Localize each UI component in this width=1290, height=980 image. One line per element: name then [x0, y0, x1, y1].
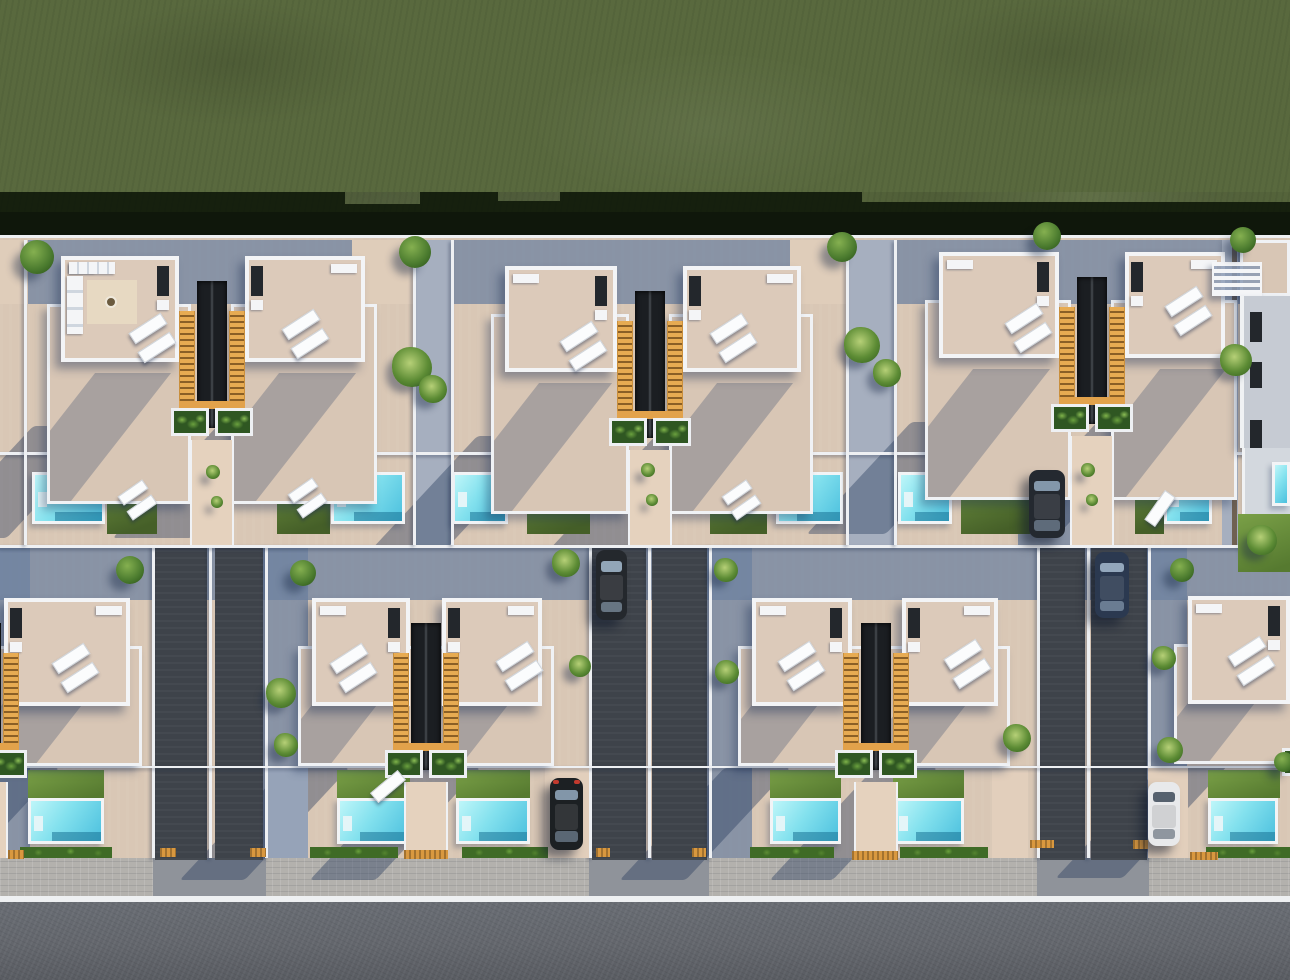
lawn: [1208, 770, 1280, 798]
pool-step-notch: [462, 816, 471, 831]
stair-flight: [617, 321, 633, 413]
roof-kitchen-slats: [69, 262, 115, 274]
pergola-slats: [1212, 262, 1262, 296]
roof-skylight: [1131, 262, 1143, 292]
roof-unit-box: [388, 642, 400, 652]
tree: [1230, 227, 1256, 253]
corner-building-facade: [1240, 296, 1290, 448]
pool-step: [479, 832, 527, 841]
pool-step-notch: [458, 492, 467, 507]
grass-notch: [345, 192, 420, 204]
pool-step-notch: [1214, 816, 1223, 831]
boundary-wall: [413, 240, 416, 545]
driveway-wall: [209, 545, 212, 858]
roof-unit-box: [10, 642, 22, 652]
car-windshield: [1153, 792, 1175, 802]
hedge: [1206, 847, 1290, 858]
roof-skylight: [1037, 262, 1049, 292]
car-rear-glass: [1034, 520, 1059, 530]
pool-step: [360, 832, 407, 841]
tactile-pad: [160, 848, 176, 857]
palm-tree: [211, 496, 223, 508]
entry-walkway: [404, 782, 448, 858]
planter-box: [215, 408, 253, 436]
facade-window: [1250, 362, 1262, 388]
driveway-wall: [709, 545, 712, 858]
terrace-shadow: [47, 373, 171, 504]
roof-skylight: [157, 266, 169, 296]
lawn: [28, 770, 104, 798]
grass-field: [0, 0, 1290, 212]
pool-step: [793, 832, 839, 841]
driveway: [215, 545, 263, 860]
roof-unit-box: [830, 642, 842, 652]
stair-flight: [393, 653, 409, 745]
car-windshield: [601, 561, 623, 572]
planter-box: [879, 750, 917, 778]
planter-box: [609, 418, 647, 446]
tactile-pad: [692, 848, 706, 857]
car-roof: [1152, 805, 1175, 828]
entry-walkway: [190, 440, 234, 545]
palm-tree: [844, 327, 880, 363]
palm-tree: [266, 678, 296, 708]
planter-box: [0, 750, 27, 778]
roof-table: [105, 296, 117, 308]
roof-unit-box: [908, 642, 920, 652]
planter-box: [1051, 404, 1089, 432]
palm-tree: [1086, 494, 1098, 506]
roof-edge-box: [96, 606, 122, 615]
parked-car: [1029, 470, 1065, 538]
tree: [116, 556, 144, 584]
palm-tree: [206, 465, 220, 479]
palm-tree: [569, 655, 591, 677]
facade-window: [1250, 420, 1262, 448]
stair-flight: [3, 653, 19, 745]
tactile-pad: [596, 848, 610, 857]
planter-box: [385, 750, 423, 778]
hedge: [310, 847, 398, 858]
pool-step-notch: [34, 816, 43, 831]
driveway: [652, 545, 707, 860]
driveway-wall: [648, 545, 651, 858]
roof-edge-box: [320, 606, 346, 615]
facade-window: [1250, 312, 1262, 342]
corner-pool: [1272, 462, 1290, 506]
car-windshield: [1100, 563, 1124, 573]
roof-skylight: [908, 608, 920, 638]
parking-spot: [992, 770, 1028, 858]
car-rear-glass: [1153, 829, 1175, 839]
planter-box: [171, 408, 209, 436]
palm-tree: [419, 375, 447, 403]
tree: [1170, 558, 1194, 582]
entry-walkway: [1070, 436, 1114, 545]
tactile-pad: [1133, 840, 1148, 849]
parked-car: [1148, 782, 1180, 846]
roof-unit-box: [1131, 296, 1143, 306]
terrace-shadow: [231, 373, 356, 504]
stair-flight: [667, 321, 683, 413]
roof-unit-box: [1037, 296, 1049, 306]
roof-edge-box: [508, 606, 534, 615]
swimming-pool: [456, 798, 530, 844]
palm-tree: [715, 660, 739, 684]
stair-flight: [843, 653, 859, 745]
driveway: [1040, 545, 1085, 860]
stair-flight: [1109, 307, 1125, 399]
planter-box: [653, 418, 691, 446]
car-roof: [1100, 576, 1124, 600]
pool-step: [354, 512, 402, 521]
driveway-wall: [1087, 545, 1090, 858]
tree: [1274, 752, 1290, 772]
tactile-pad: [404, 850, 448, 859]
pool-step: [915, 512, 949, 521]
driveway: [155, 545, 207, 860]
palm-tree: [1081, 463, 1095, 477]
boundary-wall: [846, 240, 849, 545]
roof-skylight: [448, 608, 460, 638]
pool-step-notch: [899, 816, 908, 831]
palm-tree: [1220, 344, 1252, 376]
car-rear-glass: [1100, 601, 1124, 611]
roof-skylight: [595, 276, 607, 306]
palm-tree: [1152, 646, 1176, 670]
stair-flight: [443, 653, 459, 745]
parked-car: [1095, 552, 1129, 618]
boundary-wall: [0, 766, 1290, 768]
driveway-wall: [1037, 545, 1040, 858]
car-rear-glass: [601, 602, 623, 613]
stair-flight: [893, 653, 909, 745]
hedge: [750, 847, 834, 858]
roof-edge-box: [1196, 604, 1222, 613]
pool-step: [55, 512, 102, 521]
terrace-shadow: [1111, 369, 1226, 500]
planter-box: [835, 750, 873, 778]
pool-step-notch: [343, 816, 352, 831]
tree: [1033, 222, 1061, 250]
tree: [20, 240, 54, 274]
roof-unit-box: [157, 300, 169, 310]
grass-notch: [862, 192, 1290, 202]
swimming-pool: [28, 798, 104, 844]
villa-upper-roof: [902, 598, 998, 706]
car-roof: [555, 804, 579, 830]
roof-edge-box: [964, 606, 990, 615]
tactile-pad: [852, 851, 898, 860]
roof-unit-box: [689, 310, 701, 320]
villa-upper-roof: [939, 252, 1059, 358]
parking-spot: [268, 768, 308, 858]
roof-edge-box: [947, 260, 973, 269]
hedge: [462, 847, 548, 858]
stair-flight: [179, 311, 195, 403]
planter-box: [429, 750, 467, 778]
boundary-wall: [894, 240, 897, 545]
pool-step: [916, 832, 962, 841]
palm-tree: [1003, 724, 1031, 752]
roof-kitchen-counter: [67, 276, 83, 334]
roof-skylight: [1268, 606, 1280, 636]
grass-notch: [498, 192, 560, 201]
hedge: [900, 847, 988, 858]
villa-upper-roof: [505, 266, 617, 372]
street-asphalt: [0, 902, 1290, 980]
car-tail-light: [553, 780, 559, 784]
palm-tree: [274, 733, 298, 757]
pool-step-notch: [904, 492, 913, 507]
car-tail-light: [574, 780, 580, 784]
swimming-pool: [1208, 798, 1278, 844]
boundary-wall: [0, 545, 1290, 548]
roof-unit-box: [595, 310, 607, 320]
lawn: [456, 770, 530, 798]
boundary-wall: [24, 240, 27, 545]
entry-walkway: [854, 782, 898, 858]
pool-step: [1230, 832, 1275, 841]
tree: [827, 232, 857, 262]
palm-tree: [646, 494, 658, 506]
palm-tree: [1247, 525, 1277, 555]
roof-unit-box: [1268, 640, 1280, 650]
car-windshield: [555, 790, 578, 801]
tree: [399, 236, 431, 268]
parked-car: [596, 550, 627, 620]
car-roof: [600, 575, 622, 600]
stair-flight: [1059, 307, 1075, 399]
roof-unit-box: [251, 300, 263, 310]
car-windshield: [1034, 481, 1059, 491]
palm-tree: [552, 549, 580, 577]
roof-edge-box: [513, 274, 539, 283]
roof-edge-box: [767, 274, 793, 283]
tactile-pad: [250, 848, 266, 857]
palm-tree: [873, 359, 901, 387]
scene: [0, 0, 1290, 980]
swimming-pool: [337, 798, 410, 844]
palm-tree: [641, 463, 655, 477]
pool-step: [52, 832, 101, 841]
roof-skylight: [388, 608, 400, 638]
roof-edge-box: [760, 606, 786, 615]
tactile-pad: [1190, 852, 1218, 860]
roof-skylight: [830, 608, 842, 638]
pool-step-notch: [776, 816, 785, 831]
tactile-pad: [8, 850, 24, 859]
tactile-pad: [1030, 840, 1054, 848]
planter-box: [1095, 404, 1133, 432]
roof-skylight: [10, 608, 22, 638]
stair-flight: [229, 311, 245, 403]
swimming-pool: [770, 798, 841, 844]
tree: [290, 560, 316, 586]
roof-skylight: [689, 276, 701, 306]
palm-tree: [1157, 737, 1183, 763]
pool-step: [1180, 512, 1209, 521]
palm-tree: [714, 558, 738, 582]
roof-unit-box: [448, 642, 460, 652]
terrace-shadow: [491, 383, 612, 514]
hedge: [20, 847, 112, 858]
parked-car: [550, 778, 583, 850]
car-roof: [1034, 494, 1060, 518]
driveway-wall: [152, 545, 155, 858]
roof-edge-box: [331, 264, 357, 273]
pool-step-notch: [38, 492, 47, 507]
car-rear-glass: [555, 831, 578, 842]
entry-walkway: [0, 782, 8, 858]
roof-skylight: [251, 266, 263, 296]
boundary-wall: [451, 240, 454, 545]
lawn: [770, 770, 841, 798]
swimming-pool: [893, 798, 964, 844]
driveway-wall: [589, 545, 592, 858]
